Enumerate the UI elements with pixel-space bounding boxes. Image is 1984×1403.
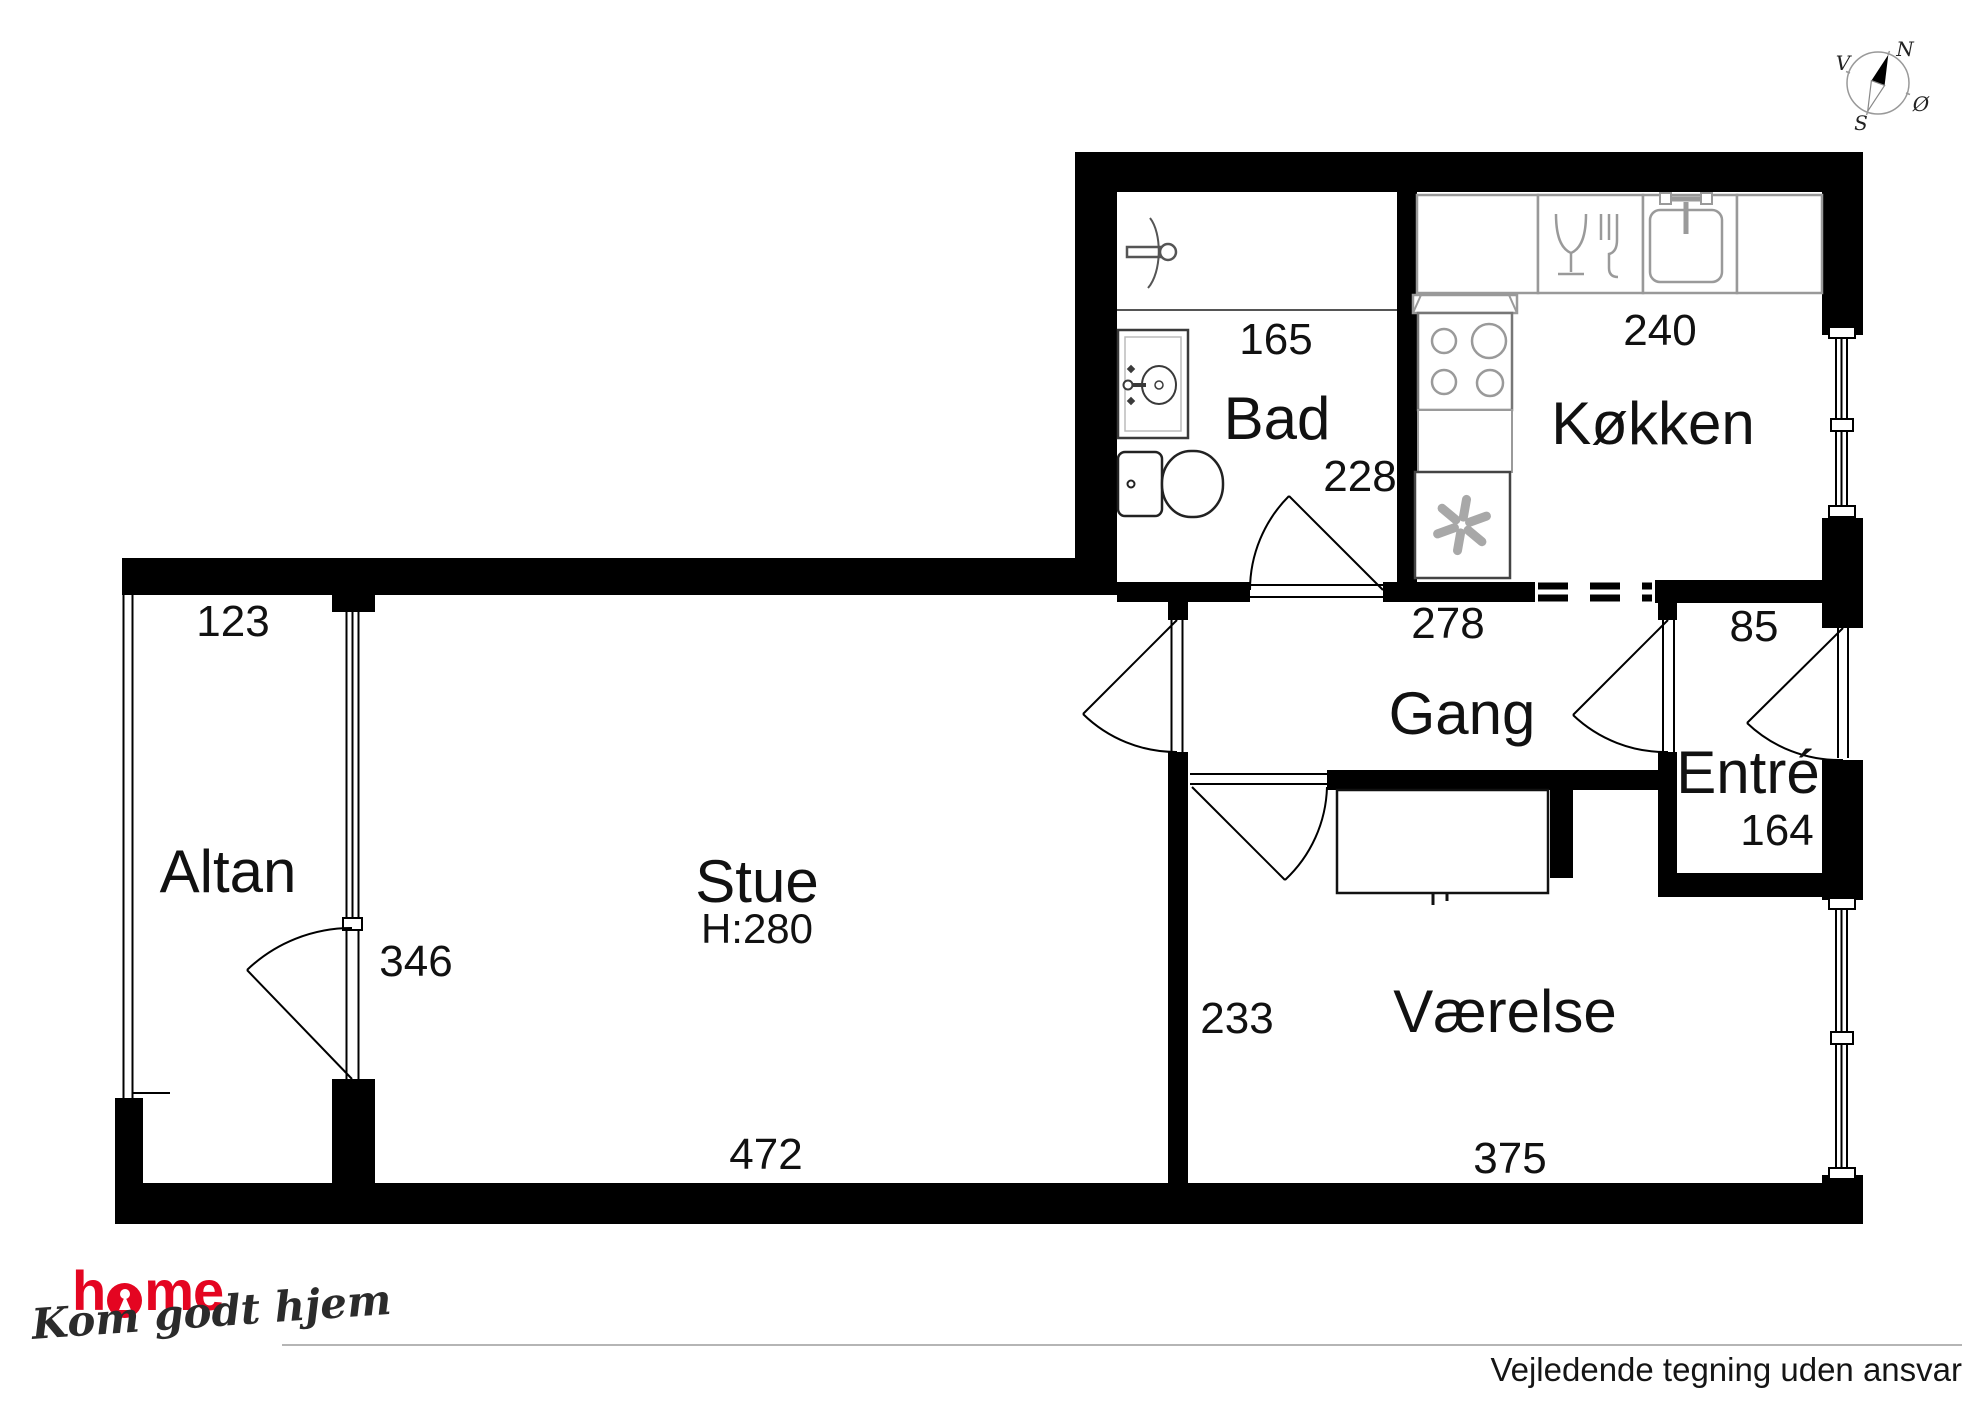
footer-divider-line (282, 1344, 1962, 1346)
dim-entre-depth: 164 (1740, 806, 1813, 855)
stue-gang-door (1083, 620, 1183, 752)
dim-stue-width: 472 (729, 1130, 802, 1179)
dim-kokken-width: 240 (1623, 306, 1696, 355)
floorplan-drawing: N Ø S V Altan Stue H:280 Bad Køkken Gang… (0, 0, 1984, 1403)
stue-vaerelse-door (1190, 774, 1327, 880)
kokken-window (1829, 327, 1855, 517)
closet (1337, 790, 1548, 905)
dim-bad-width: 165 (1239, 315, 1312, 364)
compass-north-label: N (1895, 37, 1915, 61)
dim-gang-width: 278 (1411, 599, 1484, 648)
room-label-bad: Bad (1224, 385, 1331, 452)
dim-altan-length: 346 (379, 937, 452, 986)
disclaimer-text: Vejledende tegning uden ansvar (1490, 1351, 1962, 1389)
toilet-icon (1118, 451, 1223, 517)
ceiling-height-label: H:280 (701, 905, 813, 952)
room-label-altan: Altan (160, 838, 297, 905)
dim-altan-width: 123 (196, 597, 269, 646)
room-label-vaerelse: Værelse (1393, 978, 1616, 1045)
bad-door (1250, 496, 1383, 597)
dim-vaerelse-width: 375 (1473, 1134, 1546, 1183)
gang-entre-door (1573, 620, 1674, 752)
vaerelse-window (1829, 898, 1855, 1179)
refrigerator-fan-icon (1415, 472, 1510, 578)
floorplan-page: N Ø S V Altan Stue H:280 Bad Køkken Gang… (0, 0, 1984, 1403)
shower-icon (1127, 218, 1176, 288)
altan-door-swing (247, 928, 352, 1079)
compass-west-label: V (1836, 51, 1853, 75)
kitchen-counter-row (1417, 195, 1822, 293)
dim-vaerelse-depth: 233 (1200, 994, 1273, 1043)
dim-entre-passage: 85 (1730, 602, 1779, 651)
washbasin-icon (1118, 330, 1188, 438)
stove-burners-icon (1413, 295, 1517, 472)
altan-glazed-divider (343, 612, 362, 1079)
dim-bad-depth: 228 (1323, 452, 1396, 501)
kokken-open-passage (1538, 586, 1652, 598)
room-label-gang: Gang (1389, 680, 1536, 747)
compass-south-label: S (1854, 111, 1868, 135)
compass-east-label: Ø (1912, 92, 1930, 116)
room-label-entre: Entré (1676, 739, 1819, 806)
room-label-kokken: Køkken (1551, 390, 1754, 457)
